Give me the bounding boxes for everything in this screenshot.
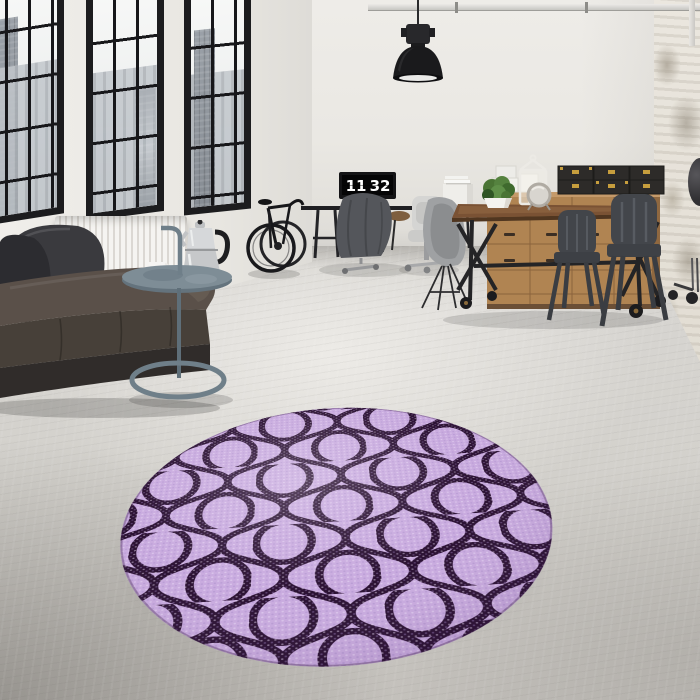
window-left xyxy=(0,0,64,227)
round-mirror xyxy=(528,184,550,210)
draped-jacket xyxy=(336,193,391,258)
pipe-bracket xyxy=(585,2,588,13)
saddle xyxy=(258,199,272,205)
top-tube xyxy=(268,205,290,208)
loft-room-photo: 11 32 xyxy=(0,0,700,700)
lamp-cap xyxy=(406,24,430,44)
moka-pot xyxy=(181,220,228,272)
pendant-lamp xyxy=(390,0,460,92)
window-muntins xyxy=(0,0,57,219)
round-rug xyxy=(107,287,562,700)
lamp-inner-light xyxy=(399,75,437,81)
window-muntins xyxy=(93,0,157,213)
rug-surface xyxy=(85,396,605,683)
wall-pipe xyxy=(689,0,695,46)
black-storage-boxes xyxy=(558,166,664,194)
window-muntins xyxy=(191,0,244,208)
crank xyxy=(274,242,282,250)
window-middle xyxy=(86,0,164,221)
